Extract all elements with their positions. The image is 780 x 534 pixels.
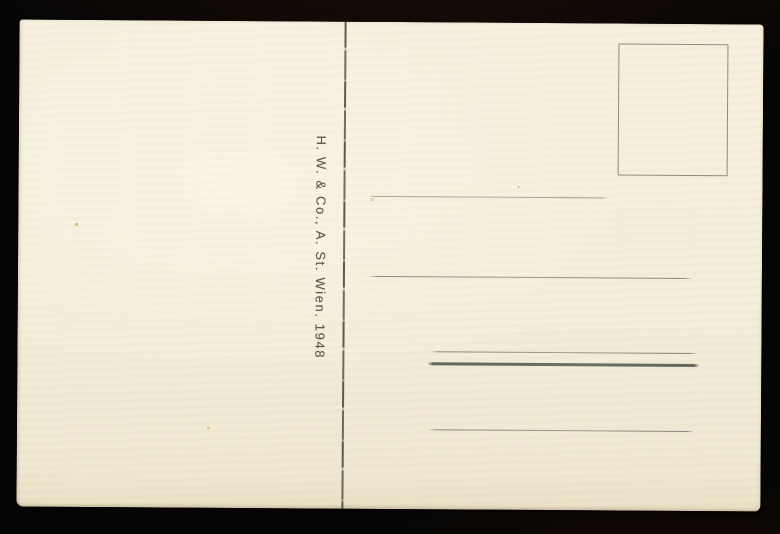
address-rule-1: [368, 196, 608, 199]
paper-speck: [75, 223, 78, 226]
paper-speck: [207, 427, 210, 429]
address-rule-2: [368, 276, 693, 279]
address-rule-3: [430, 351, 697, 354]
photo-background: H. W. & Co., A. St. Wien. 1948: [0, 0, 780, 534]
stamp-box: [618, 44, 729, 177]
publisher-imprint: H. W. & Co., A. St. Wien. 1948: [312, 135, 329, 385]
paper-speck: [518, 186, 520, 188]
postcard-back: H. W. & Co., A. St. Wien. 1948: [16, 20, 763, 512]
address-rule-thick: [427, 362, 699, 367]
postcard-center-divider: [341, 22, 346, 509]
paper-speck: [370, 198, 374, 201]
address-rule-5: [428, 429, 694, 432]
